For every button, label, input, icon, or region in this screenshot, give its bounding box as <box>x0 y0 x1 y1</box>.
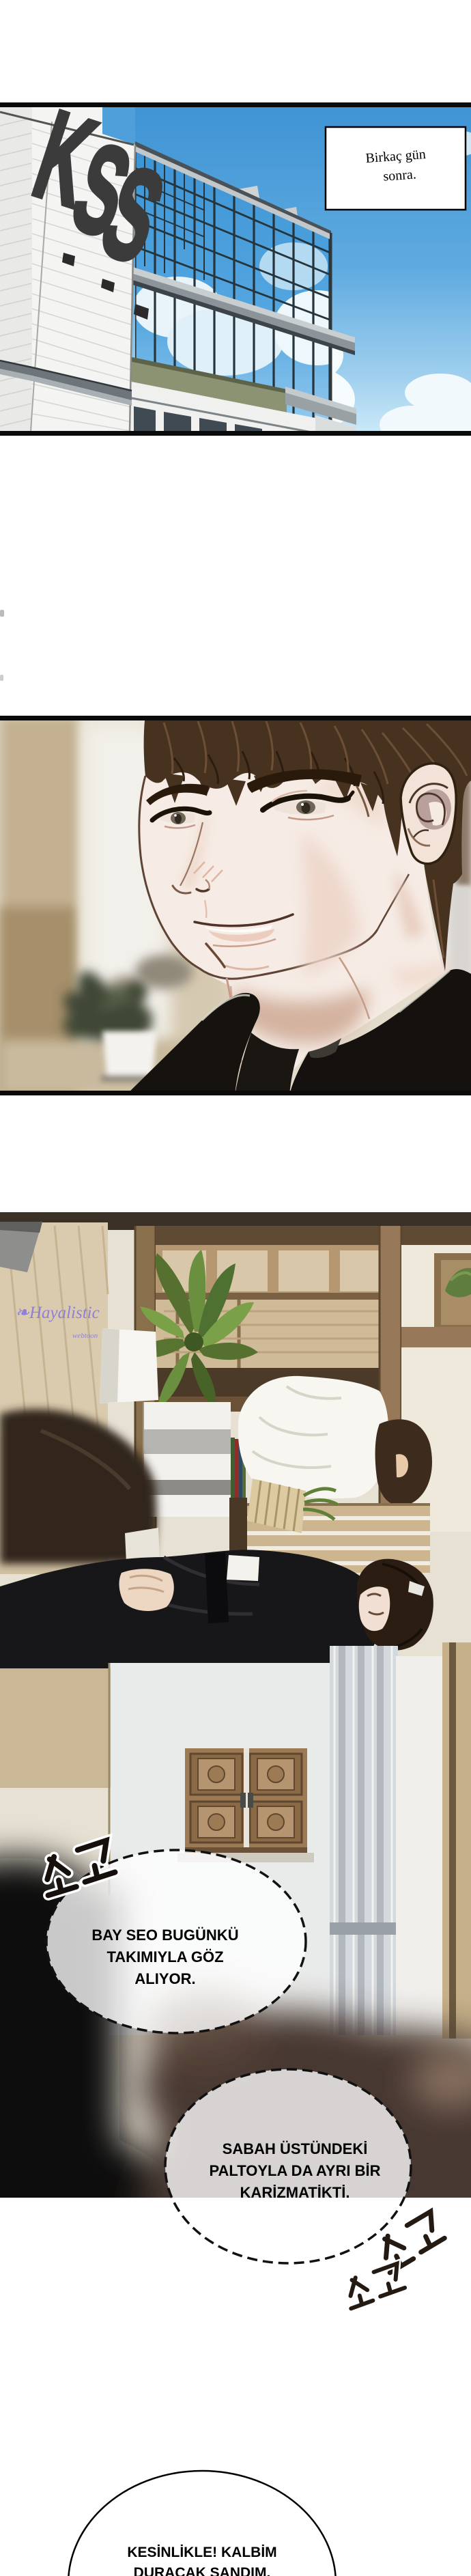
svg-text:❧Hayalistic: ❧Hayalistic <box>15 1304 100 1322</box>
svg-text:KARİZMATİKTİ.: KARİZMATİKTİ. <box>240 2184 350 2201</box>
svg-text:ALIYOR.: ALIYOR. <box>134 1970 195 1987</box>
svg-text:webtoon: webtoon <box>72 1332 98 1340</box>
svg-text:SABAH ÜSTÜNDEKİ: SABAH ÜSTÜNDEKİ <box>223 2140 368 2157</box>
svg-text:PALTOYLA DA AYRI BİR: PALTOYLA DA AYRI BİR <box>210 2162 381 2179</box>
svg-text:KESİNLİKLE! KALBİM: KESİNLİKLE! KALBİM <box>127 2545 276 2560</box>
svg-text:TAKIMIYLA GÖZ: TAKIMIYLA GÖZ <box>106 1948 223 1965</box>
svg-text:sonra.: sonra. <box>383 167 417 184</box>
svg-text:BAY SEO BUGÜNKÜ: BAY SEO BUGÜNKÜ <box>91 1927 238 1944</box>
svg-text:DURACAK SANDIM.: DURACAK SANDIM. <box>134 2565 271 2576</box>
